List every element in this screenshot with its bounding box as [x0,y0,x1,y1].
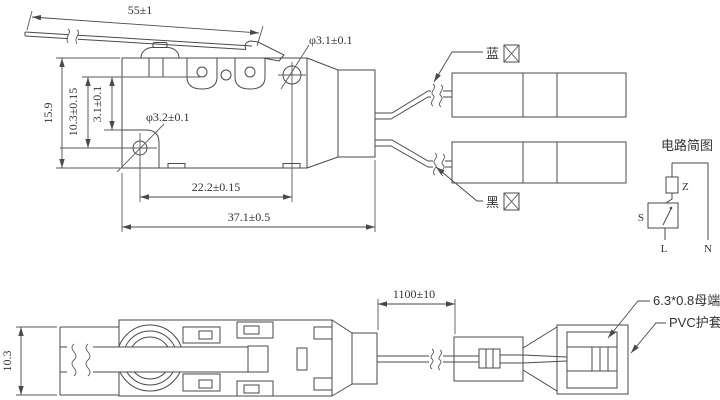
small-hole [221,70,231,80]
lead-wires [375,84,452,176]
bottom-notches [168,164,300,169]
dim-height-text: 15.9 [41,103,55,124]
dim-hole-height-text: 10.3±0.15 [66,88,80,137]
dim-small-text: 3.1±0.1 [90,86,104,123]
mounting-ear [122,130,159,168]
micro-switch-drawing: 55±1 φ3.1±0.1 [0,0,720,400]
resistor-label: Z [682,181,689,193]
switch-label: S [638,212,644,224]
circuit-diagram: 电路简图 Z S L N [638,138,713,255]
label-black-text: 黑 [486,195,499,210]
plan-lever-bar [60,344,248,376]
dim-lever-length-text: 55±1 [128,3,153,17]
dim-cable-length: 1100±10 [378,287,455,334]
terminal-tab-1 [187,58,217,89]
lever-break-symbol [67,29,79,44]
label-blue-wire: 蓝 [434,45,519,82]
dim-hole-bottom-text: φ3.2±0.1 [146,110,190,124]
leader-hole-top [281,45,309,89]
dim-hole-top-text: φ3.1±0.1 [309,33,353,47]
label-sheath: PVC护套 [631,315,720,353]
plan-gland-cable [332,320,454,396]
label-terminal-text: 6.3*0.8母端 [653,293,720,308]
label-sheath-text: PVC护套 [669,315,720,330]
dim-hole-spacing-text: 22.2±0.15 [192,180,241,194]
side-view: 55±1 φ3.1±0.1 [25,3,626,232]
technical-drawing-page: 55±1 φ3.1±0.1 [0,0,720,400]
terminal-l-label: L [661,243,668,255]
dim-cable-length-text: 1100±10 [393,287,435,301]
dim-body-text: 37.1±0.5 [228,210,271,224]
plunger-slot [149,58,163,77]
dim-lever-width: 10.3 [0,327,57,395]
label-blue-text: 蓝 [486,46,499,61]
plunger-cap [141,48,179,59]
terminal-n-label: N [704,243,712,255]
resistor-symbol [666,177,678,193]
hole-bottom-left: φ3.2±0.1 [117,110,190,172]
female-terminal [523,325,628,394]
dim-lever-width-text: 10.3 [0,351,14,372]
lever-arm [25,29,284,61]
ferrule-bottom [452,142,626,183]
label-black-wire: 黑 [436,167,519,210]
ferrule-top [452,73,626,117]
plan-view: 10.3 [0,287,720,396]
terminal-tab-2 [235,58,265,89]
cable-gland [307,58,375,168]
circuit-title: 电路简图 [661,138,713,153]
crimp-sleeve [454,337,523,381]
